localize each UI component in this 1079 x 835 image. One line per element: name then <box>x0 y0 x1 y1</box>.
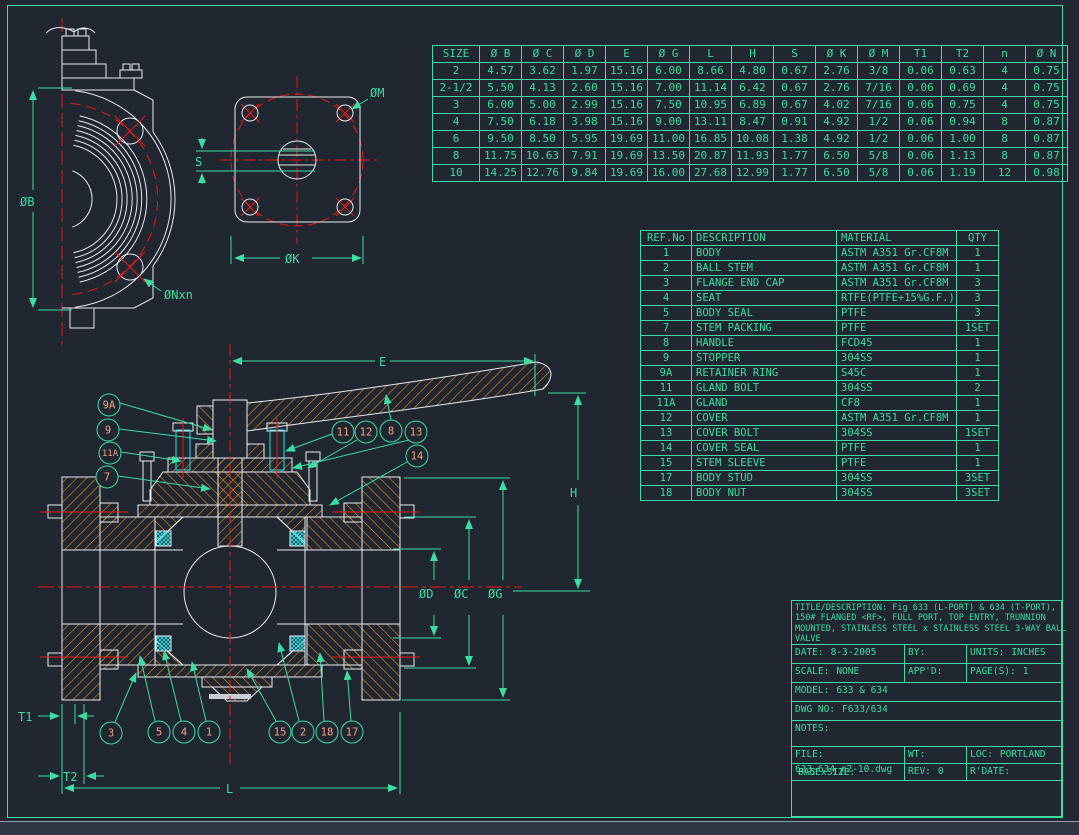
bom-table: REF.NoDESCRIPTIONMATERIALQTY1BODYASTM A3… <box>640 230 999 501</box>
table-cell: 0.98 <box>1026 165 1068 182</box>
table-cell: 10 <box>433 165 480 182</box>
table-cell: 2.76 <box>816 63 858 80</box>
table-cell: 7.91 <box>564 148 606 165</box>
table-cell: 5.95 <box>564 131 606 148</box>
table-cell: 6.00 <box>648 63 690 80</box>
table-cell: 8.47 <box>732 114 774 131</box>
table-cell: GLAND <box>692 396 837 411</box>
taskbar[interactable] <box>0 821 1079 835</box>
table-cell: 7.00 <box>648 80 690 97</box>
dim-label-s: S <box>195 155 202 169</box>
table-cell: 8 <box>641 336 692 351</box>
table-cell: 12.76 <box>522 165 564 182</box>
table-cell: 12.99 <box>732 165 774 182</box>
table-cell: 16.00 <box>648 165 690 182</box>
table-cell: RTFE(PTFE+15%G.F.) <box>837 291 957 306</box>
table-cell: 0.87 <box>1026 114 1068 131</box>
table-cell: 1 <box>957 261 999 276</box>
table-row: 7STEM PACKINGPTFE1SET <box>641 321 999 336</box>
table-cell: 1 <box>641 246 692 261</box>
table-cell: BODY <box>692 246 837 261</box>
column-header: QTY <box>957 231 999 246</box>
table-cell: 0.69 <box>942 80 984 97</box>
title-line: 150# FLANGED <RF>, FULL PORT, TOP ENTRY,… <box>795 613 1061 623</box>
notes-field: NOTES: <box>792 721 829 746</box>
table-cell: 2.99 <box>564 97 606 114</box>
table-cell: ASTM A351 Gr.CF8M <box>837 261 957 276</box>
table-cell: 10.63 <box>522 148 564 165</box>
table-cell: HANDLE <box>692 336 837 351</box>
table-row: 15STEM SLEEVEPTFE1 <box>641 456 999 471</box>
table-cell: BALL STEM <box>692 261 837 276</box>
table-cell: 1 <box>957 366 999 381</box>
table-cell: 2 <box>957 381 999 396</box>
balloon-leader <box>347 671 351 721</box>
balloon-number: 14 <box>411 451 424 463</box>
table-cell: 1/2 <box>858 131 900 148</box>
table-cell: 9 <box>641 351 692 366</box>
table-cell: 0.67 <box>774 97 816 114</box>
table-cell: 7/16 <box>858 80 900 97</box>
dim-label-m: ØM <box>370 86 384 100</box>
table-cell: 9.84 <box>564 165 606 182</box>
column-header: Ø M <box>858 46 900 63</box>
side-view: ØB ØNxn <box>20 18 193 345</box>
balloon-number: 15 <box>274 727 287 739</box>
section-view: E H ØD ØC ØG T1 T2 L 9A911A7111281314354… <box>18 344 590 796</box>
table-cell: ASTM A351 Gr.CF8M <box>837 276 957 291</box>
dim-label-l: L <box>226 782 233 796</box>
dim-label-e: E <box>379 355 386 369</box>
dims-top-view <box>196 99 368 264</box>
table-cell: 2 <box>641 261 692 276</box>
table-cell: 9.00 <box>648 114 690 131</box>
table-row: 1BODYASTM A351 Gr.CF8M1 <box>641 246 999 261</box>
table-cell: 15.16 <box>606 114 648 131</box>
dwg-no-field: DWG NO:F633/634 <box>792 702 888 720</box>
table-cell: 13.50 <box>648 148 690 165</box>
table-cell: 3 <box>641 276 692 291</box>
table-cell: 4.13 <box>522 80 564 97</box>
balloon-number: 7 <box>104 472 110 484</box>
table-row: 4SEATRTFE(PTFE+15%G.F.)3 <box>641 291 999 306</box>
table-row: 3FLANGE END CAPASTM A351 Gr.CF8M3 <box>641 276 999 291</box>
table-cell: 20.87 <box>690 148 732 165</box>
table-cell: 0.75 <box>1026 97 1068 114</box>
dim-label-h: H <box>570 486 577 500</box>
balloon-number: 11 <box>337 427 350 439</box>
table-cell: 4 <box>984 97 1026 114</box>
table-cell: 0.06 <box>900 80 942 97</box>
rev-field: REV:0 <box>904 764 966 780</box>
table-cell: 12 <box>984 165 1026 182</box>
top-view: S ØM ØK <box>195 76 384 266</box>
table-cell: CF8 <box>837 396 957 411</box>
table-cell: 11A <box>641 396 692 411</box>
balloon-number: 2 <box>300 727 306 739</box>
table-cell: COVER <box>692 411 837 426</box>
scale-field: SCALE:NONE <box>792 664 904 682</box>
column-header: n <box>984 46 1026 63</box>
table-cell: 8 <box>984 114 1026 131</box>
table-cell: 1.19 <box>942 165 984 182</box>
table-cell: 1.38 <box>774 131 816 148</box>
table-row: 12COVERASTM A351 Gr.CF8M1 <box>641 411 999 426</box>
table-cell: 3/8 <box>858 63 900 80</box>
table-cell: 7.50 <box>648 97 690 114</box>
table-cell: 0.75 <box>1026 80 1068 97</box>
title-line: VALVE <box>795 634 1061 644</box>
table-cell: BODY SEAL <box>692 306 837 321</box>
table-cell: 1.00 <box>942 131 984 148</box>
page-size-field: 633-634 r2-10.dwg PAGE SIZE:8.5 x 11L <box>792 764 904 780</box>
title-block-empty-area <box>792 780 1061 819</box>
table-cell: 17 <box>641 471 692 486</box>
table-cell: 5/8 <box>858 148 900 165</box>
table-cell: SEAT <box>692 291 837 306</box>
table-cell: 1SET <box>957 426 999 441</box>
table-cell: STEM PACKING <box>692 321 837 336</box>
balloon-number: 11A <box>102 449 119 459</box>
section-hatched-parts <box>62 362 551 701</box>
dim-label-t1: T1 <box>18 710 32 724</box>
table-cell: 15.16 <box>606 63 648 80</box>
title-line: MOUNTED, STAINLESS STEEL x STAINLESS STE… <box>795 624 1061 634</box>
balloon-number: 1 <box>206 727 212 739</box>
table-cell: 7.50 <box>480 114 522 131</box>
table-cell: 8 <box>984 148 1026 165</box>
table-cell: 1SET <box>957 321 999 336</box>
table-cell: 27.68 <box>690 165 732 182</box>
table-cell: 4.02 <box>816 97 858 114</box>
table-row: 36.005.002.9915.167.5010.956.890.674.027… <box>433 97 1068 114</box>
table-cell: 10.08 <box>732 131 774 148</box>
table-cell: 9.50 <box>480 131 522 148</box>
table-cell: 4.80 <box>732 63 774 80</box>
column-header: Ø C <box>522 46 564 63</box>
table-cell: 3 <box>957 291 999 306</box>
table-cell: 0.94 <box>942 114 984 131</box>
table-cell: 14.25 <box>480 165 522 182</box>
table-cell: BODY STUD <box>692 471 837 486</box>
table-row: 11GLAND BOLT304SS2 <box>641 381 999 396</box>
table-cell: 6 <box>433 131 480 148</box>
table-cell: 0.06 <box>900 97 942 114</box>
dim-label-c: ØC <box>454 587 468 601</box>
table-row: 24.573.621.9715.166.008.664.800.672.763/… <box>433 63 1068 80</box>
table-row: 14COVER SEALPTFE1 <box>641 441 999 456</box>
table-cell: 3 <box>957 306 999 321</box>
table-row: 18BODY NUT304SS3SET <box>641 486 999 501</box>
table-cell: 0.06 <box>900 165 942 182</box>
table-cell: 2-1/2 <box>433 80 480 97</box>
table-cell: 10.95 <box>690 97 732 114</box>
table-cell: BODY NUT <box>692 486 837 501</box>
handle <box>247 362 551 431</box>
table-cell: 6.42 <box>732 80 774 97</box>
table-cell: 0.67 <box>774 63 816 80</box>
table-cell: 7/16 <box>858 97 900 114</box>
date-field: DATE:8-3-2005 <box>792 645 904 663</box>
table-cell: 0.75 <box>1026 63 1068 80</box>
model-field: MODEL:633 & 634 <box>792 683 888 701</box>
table-cell: 6.18 <box>522 114 564 131</box>
file-field: FILE: <box>792 747 904 763</box>
balloon-leader <box>286 434 332 451</box>
table-cell: 11.75 <box>480 148 522 165</box>
table-cell: 1 <box>957 336 999 351</box>
table-cell: 8.66 <box>690 63 732 80</box>
balloon-number: 18 <box>321 727 334 739</box>
table-cell: ASTM A351 Gr.CF8M <box>837 411 957 426</box>
table-cell: 3SET <box>957 486 999 501</box>
column-header: DESCRIPTION <box>692 231 837 246</box>
column-header: Ø N <box>1026 46 1068 63</box>
table-row: 47.506.183.9815.169.0013.118.470.914.921… <box>433 114 1068 131</box>
table-cell: 19.69 <box>606 148 648 165</box>
table-cell: 4.92 <box>816 114 858 131</box>
table-cell: 1.97 <box>564 63 606 80</box>
column-header: T2 <box>942 46 984 63</box>
balloon-number: 3 <box>108 728 114 740</box>
table-cell: RETAINER RING <box>692 366 837 381</box>
table-cell: 1 <box>957 456 999 471</box>
table-cell: COVER BOLT <box>692 426 837 441</box>
table-cell: 1 <box>957 441 999 456</box>
table-row: 8HANDLEFCD451 <box>641 336 999 351</box>
table-cell: 7 <box>641 321 692 336</box>
loc-field: LOC:PORTLAND <box>966 747 1061 763</box>
table-cell: 6.00 <box>480 97 522 114</box>
table-row: 2-1/25.504.132.6015.167.0011.146.420.672… <box>433 80 1068 97</box>
table-cell: 16.85 <box>690 131 732 148</box>
balloon-number: 4 <box>181 727 187 739</box>
column-header: Ø D <box>564 46 606 63</box>
table-cell: 0.06 <box>900 63 942 80</box>
column-header: Ø G <box>648 46 690 63</box>
table-row: 1014.2512.769.8419.6916.0027.6812.991.77… <box>433 165 1068 182</box>
column-header: L <box>690 46 732 63</box>
dim-label-nxn: ØNxn <box>164 288 193 302</box>
table-cell: 8 <box>984 131 1026 148</box>
balloon-number: 9 <box>105 425 111 437</box>
table-cell: 0.06 <box>900 148 942 165</box>
table-cell: 15 <box>641 456 692 471</box>
table-row: 69.508.505.9519.6911.0016.8510.081.384.9… <box>433 131 1068 148</box>
table-cell: 4 <box>984 63 1026 80</box>
column-header: S <box>774 46 816 63</box>
table-cell: 6.50 <box>816 148 858 165</box>
table-cell: 13 <box>641 426 692 441</box>
table-cell: 11.00 <box>648 131 690 148</box>
table-cell: FCD45 <box>837 336 957 351</box>
table-cell: PTFE <box>837 321 957 336</box>
table-cell: 15.16 <box>606 97 648 114</box>
table-row: 5BODY SEALPTFE3 <box>641 306 999 321</box>
column-header: SIZE <box>433 46 480 63</box>
table-cell: 5 <box>641 306 692 321</box>
balloon-number: 17 <box>346 727 359 739</box>
table-cell: 15.16 <box>606 80 648 97</box>
balloon-number: 13 <box>410 427 423 439</box>
table-cell: 304SS <box>837 486 957 501</box>
table-cell: 1 <box>957 351 999 366</box>
table-cell: 5.50 <box>480 80 522 97</box>
table-cell: STEM SLEEVE <box>692 456 837 471</box>
table-cell: 1 <box>957 411 999 426</box>
table-cell: 14 <box>641 441 692 456</box>
table-cell: 12 <box>641 411 692 426</box>
column-header: REF.No <box>641 231 692 246</box>
table-cell: 8.50 <box>522 131 564 148</box>
table-cell: 1 <box>957 396 999 411</box>
table-cell: 11 <box>641 381 692 396</box>
table-cell: 5/8 <box>858 165 900 182</box>
table-cell: 4 <box>984 80 1026 97</box>
table-cell: 304SS <box>837 471 957 486</box>
table-cell: 3 <box>433 97 480 114</box>
table-cell: 4 <box>433 114 480 131</box>
table-cell: ASTM A351 Gr.CF8M <box>837 246 957 261</box>
rdate-field: R'DATE: <box>966 764 1061 780</box>
cad-drawing-page: ØB ØNxn <box>0 0 1079 835</box>
table-cell: 4.92 <box>816 131 858 148</box>
table-cell: 0.67 <box>774 80 816 97</box>
table-cell: GLAND BOLT <box>692 381 837 396</box>
table-cell: 1 <box>957 246 999 261</box>
table-cell: 0.06 <box>900 131 942 148</box>
column-header: H <box>732 46 774 63</box>
balloon-number: 5 <box>156 727 162 739</box>
table-cell: 0.75 <box>942 97 984 114</box>
balloon-leader <box>115 673 136 722</box>
table-cell: 19.69 <box>606 165 648 182</box>
table-row: 2BALL STEMASTM A351 Gr.CF8M1 <box>641 261 999 276</box>
dim-label-g: ØG <box>488 587 502 601</box>
balloon-leader <box>293 440 409 468</box>
table-cell: 3 <box>957 276 999 291</box>
balloon-number: 12 <box>360 427 373 439</box>
column-header: Ø K <box>816 46 858 63</box>
column-header: MATERIAL <box>837 231 957 246</box>
table-cell: PTFE <box>837 441 957 456</box>
column-header: T1 <box>900 46 942 63</box>
table-row: 17BODY STUD304SS3SET <box>641 471 999 486</box>
table-cell: 5.00 <box>522 97 564 114</box>
table-cell: 0.91 <box>774 114 816 131</box>
table-row: 9STOPPER304SS1 <box>641 351 999 366</box>
dim-label-k: ØK <box>285 252 300 266</box>
table-cell: 1.77 <box>774 148 816 165</box>
table-cell: 3.62 <box>522 63 564 80</box>
table-cell: 4.57 <box>480 63 522 80</box>
table-cell: 13.11 <box>690 114 732 131</box>
table-row: 811.7510.637.9119.6913.5020.8711.931.776… <box>433 148 1068 165</box>
table-cell: 2.76 <box>816 80 858 97</box>
table-cell: FLANGE END CAP <box>692 276 837 291</box>
table-cell: 0.63 <box>942 63 984 80</box>
table-cell: 8 <box>433 148 480 165</box>
table-cell: 0.87 <box>1026 148 1068 165</box>
table-cell: 6.50 <box>816 165 858 182</box>
dim-label-b: ØB <box>20 195 34 209</box>
table-cell: S45C <box>837 366 957 381</box>
column-header: E <box>606 46 648 63</box>
table-cell: COVER SEAL <box>692 441 837 456</box>
table-cell: 1.13 <box>942 148 984 165</box>
table-cell: 6.89 <box>732 97 774 114</box>
table-cell: 3SET <box>957 471 999 486</box>
table-cell: 304SS <box>837 426 957 441</box>
by-field: BY: <box>904 645 966 663</box>
balloon-leader <box>121 452 181 461</box>
table-cell: 4 <box>641 291 692 306</box>
table-cell: PTFE <box>837 456 957 471</box>
wt-field: WT: <box>904 747 966 763</box>
table-cell: 1.77 <box>774 165 816 182</box>
balloon-number: 8 <box>388 426 394 438</box>
table-cell: 11.14 <box>690 80 732 97</box>
table-cell: 18 <box>641 486 692 501</box>
title-description: TITLE/DESCRIPTION: Fig 633 (L-PORT) & 63… <box>792 601 1061 644</box>
table-row: 9ARETAINER RINGS45C1 <box>641 366 999 381</box>
balloon-number: 9A <box>103 400 116 412</box>
title-line: TITLE/DESCRIPTION: Fig 633 (L-PORT) & 63… <box>795 603 1061 613</box>
table-cell: 9A <box>641 366 692 381</box>
dim-label-d: ØD <box>419 587 433 601</box>
table-row: 11AGLANDCF81 <box>641 396 999 411</box>
table-cell: PTFE <box>837 306 957 321</box>
appd-field: APP'D: <box>904 664 966 682</box>
table-cell: 3.98 <box>564 114 606 131</box>
title-block: TITLE/DESCRIPTION: Fig 633 (L-PORT) & 63… <box>791 600 1062 817</box>
size-table: SIZEØ BØ CØ DEØ GLHSØ KØ MT1T2nØ N24.573… <box>432 45 1068 182</box>
table-cell: 0.06 <box>900 114 942 131</box>
table-cell: STOPPER <box>692 351 837 366</box>
units-field: UNITS:INCHES <box>966 645 1061 663</box>
table-cell: 0.87 <box>1026 131 1068 148</box>
table-cell: 19.69 <box>606 131 648 148</box>
column-header: Ø B <box>480 46 522 63</box>
pages-field: PAGE(S):1 <box>966 664 1061 682</box>
table-cell: 2 <box>433 63 480 80</box>
table-cell: 1/2 <box>858 114 900 131</box>
table-cell: 11.93 <box>732 148 774 165</box>
table-row: 13COVER BOLT304SS1SET <box>641 426 999 441</box>
dim-label-t2: T2 <box>63 770 77 784</box>
table-cell: 304SS <box>837 381 957 396</box>
table-cell: 304SS <box>837 351 957 366</box>
table-cell: 2.60 <box>564 80 606 97</box>
